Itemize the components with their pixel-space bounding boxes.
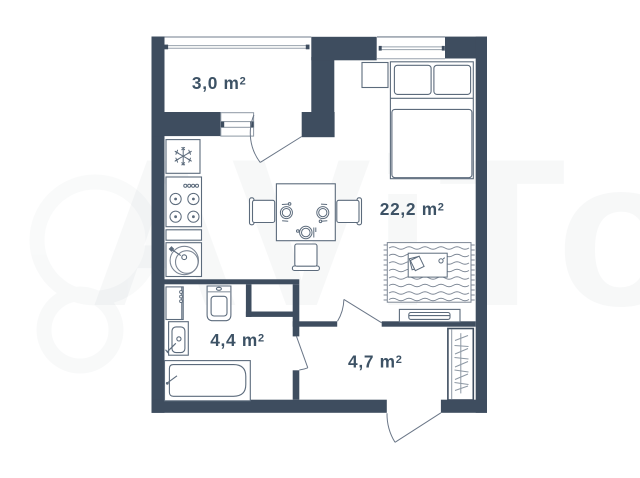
svg-text:22,2 m2: 22,2 m2 — [380, 199, 445, 219]
svg-text:4,4 m2: 4,4 m2 — [210, 330, 265, 350]
svg-text:4,7 m2: 4,7 m2 — [348, 351, 403, 371]
svg-text:3,0 m2: 3,0 m2 — [192, 73, 247, 93]
